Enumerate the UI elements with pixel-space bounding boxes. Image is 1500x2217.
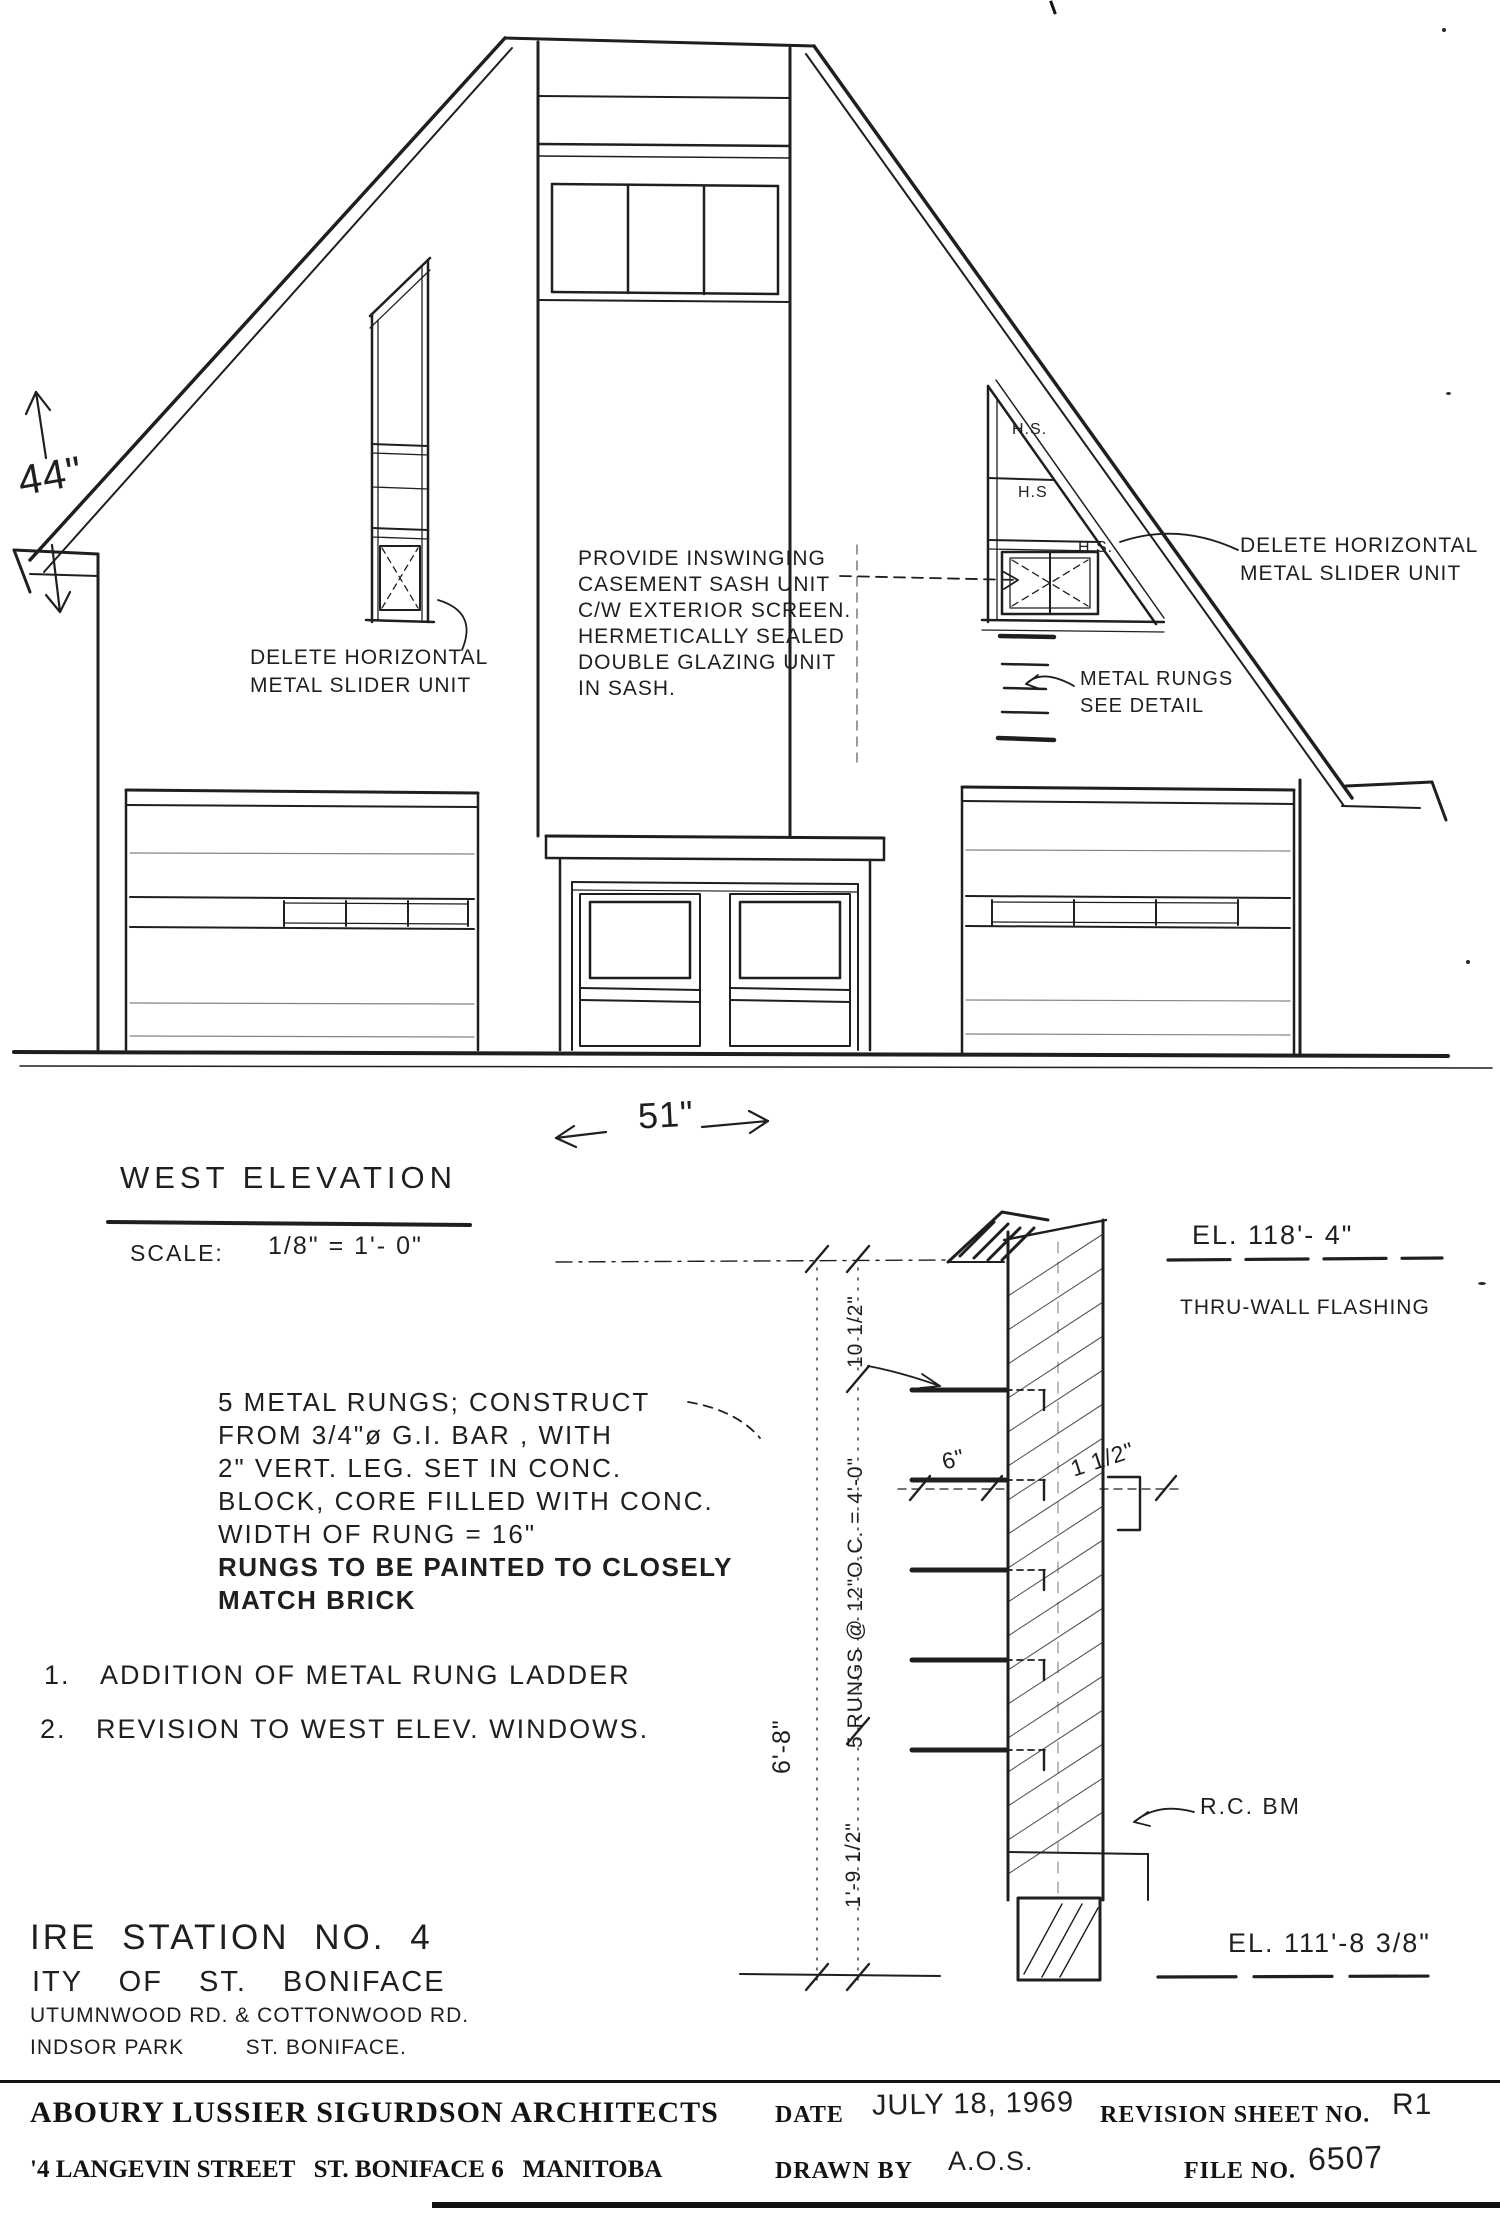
project-city: ITY OF ST. BONIFACE	[32, 1966, 446, 1999]
scan-edge-line	[432, 2202, 1500, 2208]
revision-2-text: REVISION TO WEST ELEV. WINDOWS.	[96, 1714, 649, 1744]
scale-value: 1/8" = 1'- 0"	[268, 1232, 423, 1261]
delete-left-line: METAL SLIDER UNIT	[250, 672, 488, 700]
scan-speck	[1442, 28, 1446, 32]
hs-label-2: H.S	[1018, 484, 1048, 502]
revision-sheet-value: R1	[1392, 2088, 1432, 2122]
rung-spec-line: 5 METAL RUNGS; CONSTRUCT	[218, 1386, 733, 1419]
dim-total-height-label: 6'-8"	[768, 1719, 797, 1774]
rung-spec-line: 2" VERT. LEG. SET IN CONC.	[218, 1452, 733, 1485]
rung-spec-line: FROM 3/4"ø G.I. BAR , WITH	[218, 1419, 733, 1452]
drawing-sheet: 44" PROVIDE INSWINGING CASEMENT SASH UNI…	[0, 0, 1500, 2217]
delete-left-line: DELETE HORIZONTAL	[250, 644, 488, 672]
revision-1-number: 1.	[44, 1660, 71, 1690]
file-no-value: 6507	[1307, 2139, 1383, 2179]
rung-spec-note: 5 METAL RUNGS; CONSTRUCT FROM 3/4"ø G.I.…	[218, 1386, 733, 1617]
dim-bottom-label: 1'-9 1/2"	[842, 1822, 866, 1908]
delete-right-line: DELETE HORIZONTAL	[1240, 532, 1478, 560]
drawing-title: WEST ELEVATION	[120, 1160, 457, 1196]
file-no-label: FILE NO.	[1184, 2158, 1296, 2185]
rc-beam-label: R.C. BM	[1200, 1793, 1301, 1820]
metal-rungs-line: METAL RUNGS	[1080, 666, 1233, 693]
casement-note-line: CASEMENT SASH UNIT	[578, 572, 851, 598]
dim-10-half-label: 10 1/2"	[844, 1295, 868, 1368]
drawn-by-value: A.O.S.	[948, 2146, 1034, 2177]
delete-slider-note-right: DELETE HORIZONTAL METAL SLIDER UNIT	[1240, 532, 1478, 588]
delete-slider-note-left: DELETE HORIZONTAL METAL SLIDER UNIT	[250, 644, 488, 700]
revision-1-text: ADDITION OF METAL RUNG LADDER	[100, 1660, 631, 1690]
firm-address: '4 LANGEVIN STREET ST. BONIFACE 6 MANITO…	[30, 2156, 662, 2184]
casement-note-line: PROVIDE INSWINGING	[578, 546, 851, 572]
delete-right-line: METAL SLIDER UNIT	[1240, 560, 1478, 588]
elevation-bottom-label: EL. 111'-8 3/8"	[1228, 1928, 1431, 1959]
rung-spec-line: WIDTH OF RUNG = 16"	[218, 1518, 733, 1551]
scan-speck	[1446, 392, 1451, 395]
date-value: JULY 18, 1969	[872, 2086, 1075, 2123]
scan-speck	[1466, 960, 1470, 964]
revision-sheet-label: REVISION SHEET NO.	[1100, 2102, 1370, 2129]
hs-label-3: H.S.	[1078, 539, 1113, 557]
metal-rungs-line: SEE DETAIL	[1080, 693, 1233, 720]
rung-spec-line: MATCH BRICK	[218, 1584, 733, 1617]
width-dimension-label: 51"	[637, 1093, 695, 1138]
titleblock-divider	[0, 2080, 1500, 2083]
scale-label: SCALE:	[130, 1240, 224, 1267]
project-location: UTUMNWOOD RD. & COTTONWOOD RD.	[30, 2004, 469, 2028]
revision-item-1: 1. ADDITION OF METAL RUNG LADDER	[44, 1660, 631, 1691]
drawing-linework	[0, 0, 1500, 2217]
revision-item-2: 2. REVISION TO WEST ELEV. WINDOWS.	[40, 1714, 649, 1745]
casement-note-line: IN SASH.	[578, 676, 851, 702]
rung-spec-line: RUNGS TO BE PAINTED TO CLOSELY	[218, 1551, 733, 1584]
casement-note-line: C/W EXTERIOR SCREEN.	[578, 598, 851, 624]
hs-label-1: H.S.	[1012, 421, 1047, 439]
flashing-label: THRU-WALL FLASHING	[1180, 1296, 1430, 1320]
casement-note-line: DOUBLE GLAZING UNIT	[578, 650, 851, 676]
drawn-by-label: DRAWN BY	[775, 2158, 913, 2185]
project-name: IRE STATION NO. 4	[30, 1918, 433, 1958]
scan-speck	[1478, 1282, 1486, 1285]
entry-doors	[546, 836, 884, 1050]
center-tower	[538, 42, 790, 836]
left-garage-door	[126, 790, 478, 1050]
casement-note-line: HERMETICALLY SEALED	[578, 624, 851, 650]
flashing	[948, 1212, 1048, 1262]
left-window-strip	[366, 258, 434, 622]
dim-rung-spacing-label: 5 RUNGS @ 12"O.C. = 4'-0"	[844, 1457, 868, 1748]
rc-beam	[1008, 1809, 1194, 1980]
wall-hatch	[1008, 1234, 1103, 1874]
project-district: INDSOR PARK ST. BONIFACE.	[30, 2036, 407, 2060]
date-label: DATE	[775, 2102, 844, 2129]
metal-rungs-note: METAL RUNGS SEE DETAIL	[1080, 666, 1233, 720]
revision-2-number: 2.	[40, 1714, 67, 1744]
rung-spec-line: BLOCK, CORE FILLED WITH CONC.	[218, 1485, 733, 1518]
right-triangle-window	[982, 380, 1164, 632]
casement-note: PROVIDE INSWINGING CASEMENT SASH UNIT C/…	[578, 546, 851, 702]
firm-name: ABOURY LUSSIER SIGURDSON ARCHITECTS	[30, 2096, 719, 2130]
right-garage-door	[962, 787, 1294, 1054]
elevation-top-label: EL. 118'- 4"	[1192, 1220, 1353, 1251]
